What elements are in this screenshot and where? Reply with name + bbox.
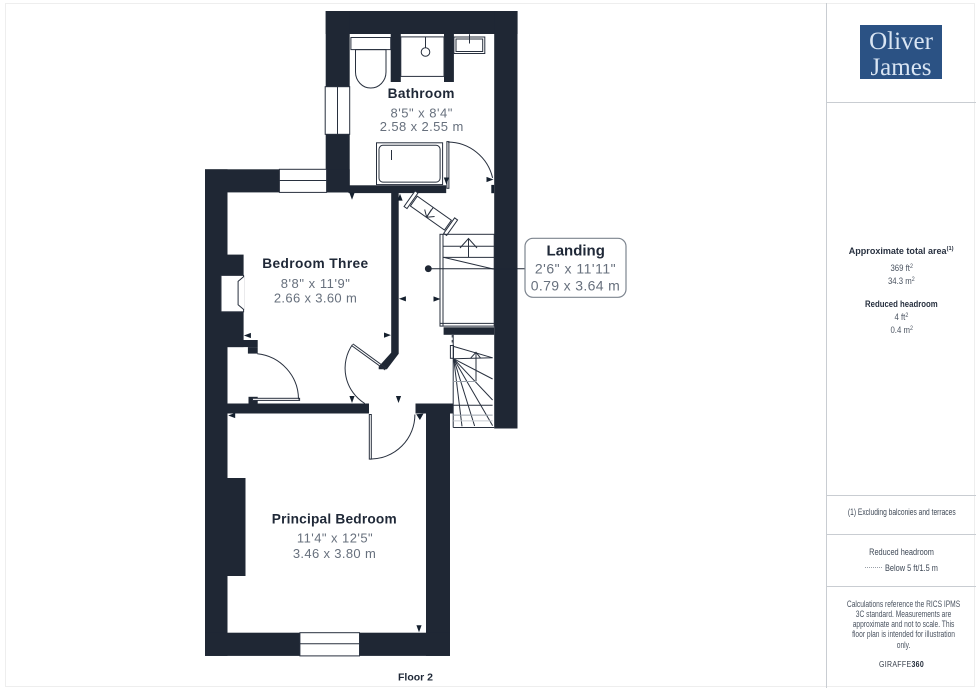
svg-text:Principal Bedroom: Principal Bedroom [272,512,397,527]
svg-text:Landing: Landing [547,243,605,260]
svg-text:Bedroom Three: Bedroom Three [262,256,368,271]
svg-text:2.58 x 2.55 m: 2.58 x 2.55 m [380,119,464,134]
svg-text:Bathroom: Bathroom [388,86,455,101]
svg-text:3.46 x 3.80 m: 3.46 x 3.80 m [293,546,376,561]
svg-text:11'4" x 12'5": 11'4" x 12'5" [297,531,373,546]
svg-text:8'8" x 11'9": 8'8" x 11'9" [281,276,351,291]
svg-text:2.66 x 3.60 m: 2.66 x 3.60 m [274,291,357,306]
svg-text:0.79 x 3.64 m: 0.79 x 3.64 m [531,278,620,294]
svg-text:2'6" x 11'11": 2'6" x 11'11" [535,261,616,277]
svg-text:Floor 2: Floor 2 [398,672,433,684]
